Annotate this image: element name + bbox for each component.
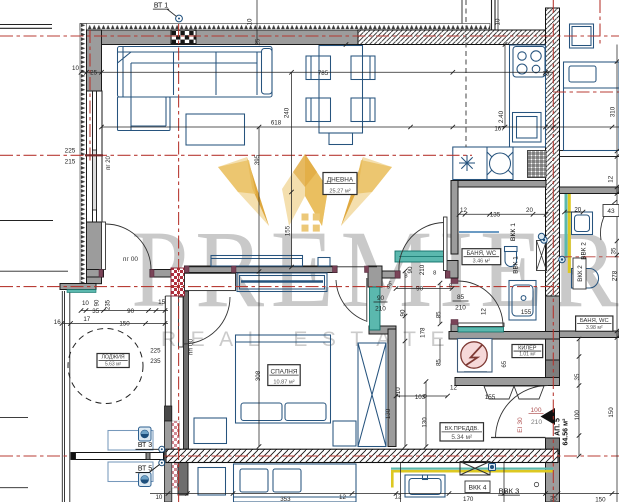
svg-text:35: 35 [574,373,581,380]
svg-text:12: 12 [608,175,615,182]
svg-text:12: 12 [481,308,488,315]
svg-text:пп 00: пп 00 [188,339,195,356]
svg-text:ДНЕВНА: ДНЕВНА [327,177,354,184]
svg-text:16: 16 [54,319,61,326]
svg-text:130: 130 [385,408,392,419]
svg-text:85: 85 [436,311,443,318]
svg-text:5: 5 [387,285,390,291]
svg-text:155: 155 [521,309,532,316]
svg-text:43: 43 [607,208,615,215]
svg-text:17: 17 [83,316,90,323]
svg-text:3.46 м²: 3.46 м² [473,259,491,265]
svg-text:215: 215 [65,159,76,166]
svg-text:150: 150 [608,407,615,418]
svg-text:15: 15 [158,299,165,306]
svg-text:8: 8 [449,284,452,290]
svg-text:20: 20 [574,207,581,214]
svg-text:155: 155 [284,225,291,236]
svg-text:ЕІ 30: ЕІ 30 [517,417,524,433]
svg-text:395: 395 [254,154,261,165]
svg-text:АП. 5: АП. 5 [555,418,562,436]
svg-text:5.63 м²: 5.63 м² [105,361,122,367]
svg-text:90: 90 [407,266,414,273]
svg-text:85: 85 [457,294,465,301]
svg-text:8: 8 [433,271,436,277]
svg-text:210: 210 [395,387,402,398]
svg-text:ВКК 1: ВКК 1 [510,223,517,241]
svg-text:20: 20 [526,207,533,214]
svg-text:пг 00: пг 00 [123,256,138,263]
svg-text:210: 210 [375,306,386,313]
svg-text:10: 10 [247,18,254,25]
svg-text:ВКК 4: ВКК 4 [468,485,486,492]
svg-text:5.34 м²: 5.34 м² [451,434,472,441]
svg-text:ВХ.ПРЕДДВ.: ВХ.ПРЕДДВ. [445,426,480,432]
svg-text:35: 35 [92,308,99,315]
svg-text:85: 85 [436,359,443,366]
svg-text:ВТ 3: ВТ 3 [138,442,152,449]
svg-text:ВКК 2: ВКК 2 [577,265,584,282]
svg-text:REAL ESTATE: REAL ESTATE [161,328,459,351]
svg-text:12: 12 [460,207,467,214]
svg-text:СПАЛНЯ: СПАЛНЯ [270,368,297,375]
svg-text:ЛОДЖИЯ: ЛОДЖИЯ [102,355,125,361]
svg-text:10.87 м²: 10.87 м² [273,379,294,385]
svg-text:ВВК 1: ВВК 1 [513,256,520,274]
svg-text:310: 310 [610,106,617,117]
svg-text:785: 785 [318,70,329,77]
svg-text:25: 25 [255,38,262,45]
svg-text:12: 12 [395,494,402,501]
svg-text:1.01 м²: 1.01 м² [519,351,536,357]
svg-text:25.27 м²: 25.27 м² [329,188,350,194]
svg-text:25: 25 [90,70,97,77]
svg-text:155: 155 [485,394,496,401]
svg-text:135: 135 [490,212,501,219]
svg-text:90: 90 [416,286,423,293]
svg-text:240: 240 [284,107,291,118]
svg-text:90: 90 [127,308,134,315]
svg-text:пг 20: пг 20 [106,155,112,169]
svg-text:235: 235 [150,358,161,365]
svg-text:210: 210 [455,305,466,312]
svg-text:100: 100 [574,410,581,421]
svg-text:10: 10 [82,300,89,307]
svg-text:12: 12 [339,494,346,501]
svg-text:64.56 м²: 64.56 м² [563,418,570,446]
svg-text:35: 35 [611,247,618,254]
svg-text:225: 225 [65,147,76,154]
svg-text:ВВК 3: ВВК 3 [499,487,520,496]
svg-text:170: 170 [463,496,474,502]
svg-text:10: 10 [72,65,79,72]
svg-text:618: 618 [271,120,282,127]
svg-text:210: 210 [419,264,426,275]
svg-text:278: 278 [612,270,619,281]
svg-text:2.40: 2.40 [498,110,505,123]
svg-text:90: 90 [377,295,385,302]
svg-text:3.98 м²: 3.98 м² [586,325,603,331]
svg-text:353: 353 [280,496,291,502]
svg-text:100: 100 [530,407,541,414]
svg-text:65: 65 [501,360,508,367]
svg-text:150: 150 [595,497,606,502]
svg-text:225: 225 [150,348,161,355]
svg-text:25: 25 [550,496,557,502]
svg-text:90: 90 [400,309,407,316]
svg-text:25: 25 [543,71,550,78]
svg-text:ВТ 1: ВТ 1 [154,3,168,10]
svg-text:90: 90 [95,299,101,306]
svg-text:10: 10 [155,494,162,501]
svg-text:210: 210 [531,419,542,426]
svg-text:308: 308 [255,370,262,381]
svg-text:178: 178 [420,327,427,338]
svg-text:103: 103 [415,394,426,401]
svg-text:ВВК 2: ВВК 2 [581,242,588,260]
svg-text:235: 235 [106,299,112,310]
svg-text:150: 150 [119,321,130,328]
svg-text:10: 10 [495,18,502,25]
svg-text:12: 12 [450,385,457,392]
svg-text:167: 167 [494,126,505,133]
svg-text:БАНЯ, WC: БАНЯ, WC [466,251,496,257]
svg-text:БАНЯ, WC: БАНЯ, WC [580,318,609,324]
svg-text:КИЛЕР: КИЛЕР [518,345,537,351]
svg-text:130: 130 [421,417,428,428]
